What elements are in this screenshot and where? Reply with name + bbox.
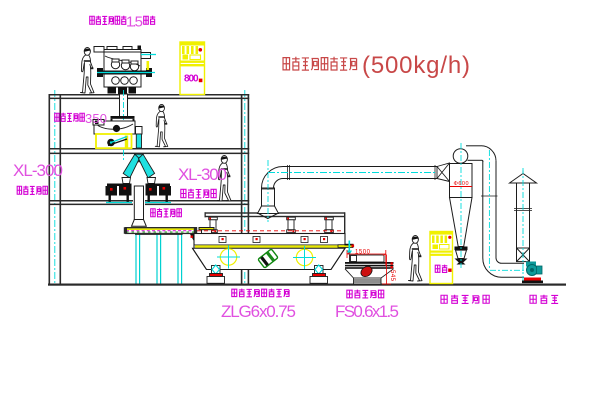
svg-text:545: 545 [389,270,395,282]
svg-text:1500: 1500 [355,250,371,256]
svg-text:800: 800 [184,74,199,85]
svg-text:XL-300: XL-300 [13,161,63,180]
svg-text:XL-300: XL-300 [178,165,227,184]
svg-text:FS0.6x1.5: FS0.6x1.5 [335,302,399,321]
svg-text:1.5: 1.5 [126,14,143,31]
svg-text:(500kg/h): (500kg/h) [362,52,470,79]
svg-text:Φ600: Φ600 [454,181,469,187]
svg-text:ZLG6x0.75: ZLG6x0.75 [221,302,296,321]
svg-text:350: 350 [85,111,107,126]
